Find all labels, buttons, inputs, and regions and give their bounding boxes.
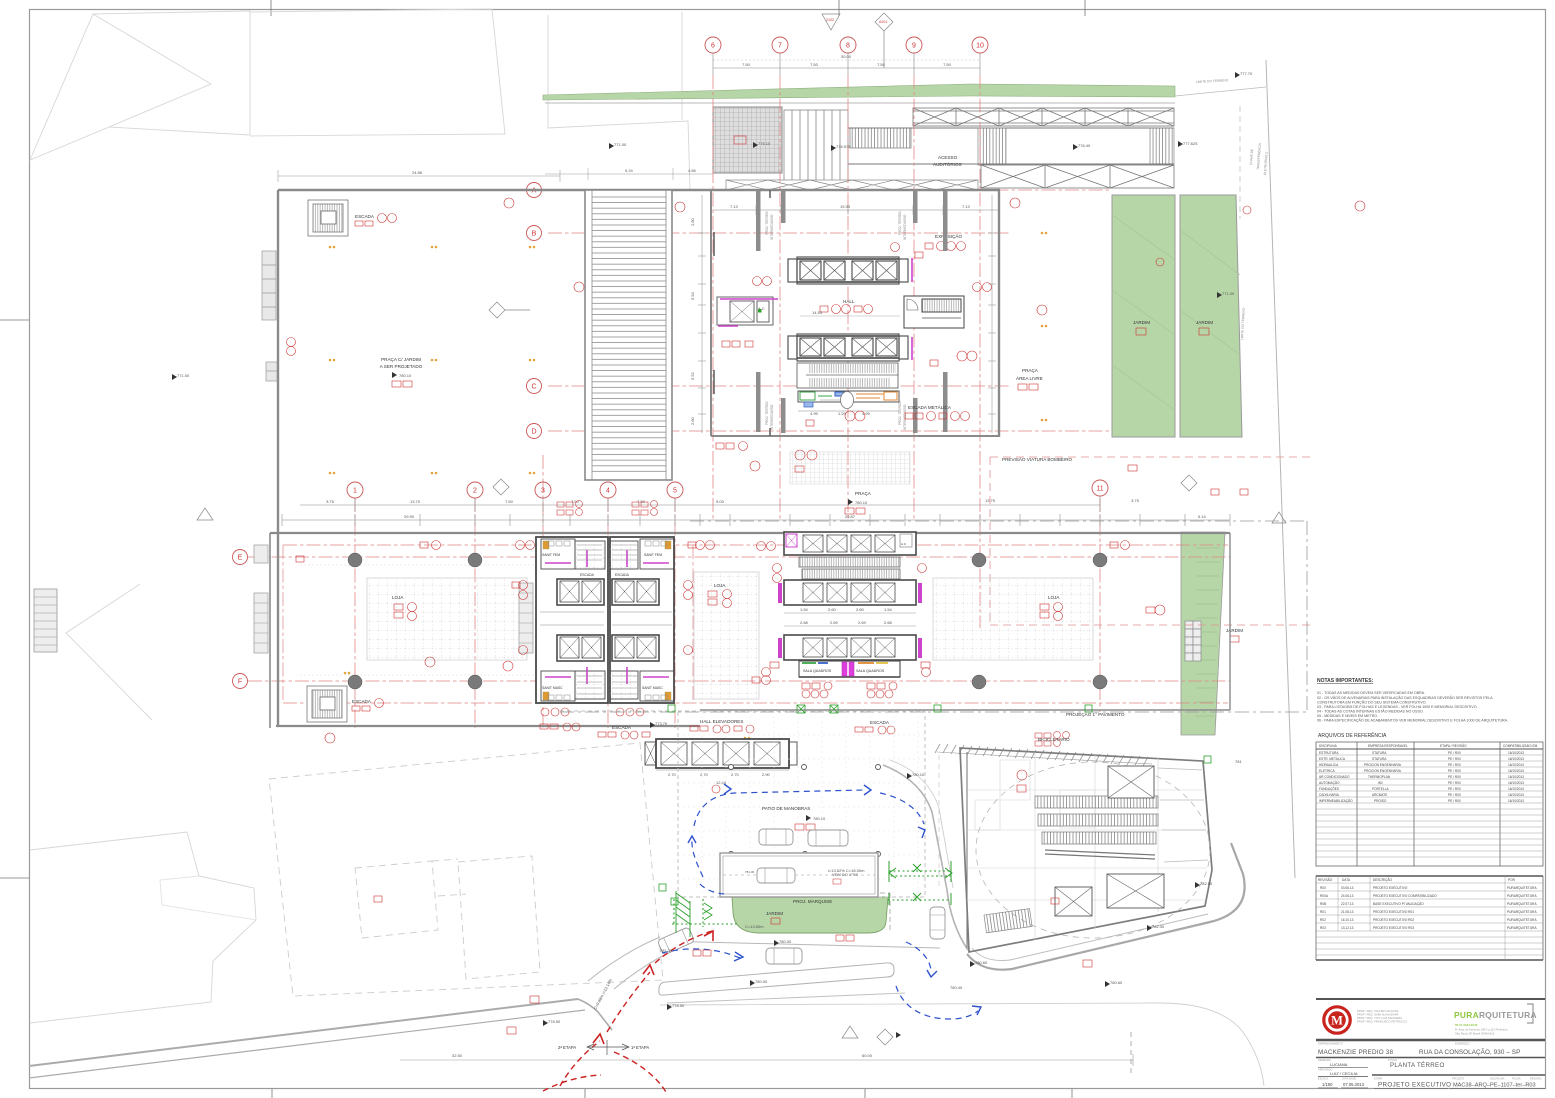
svg-text:DISCIPLINA: DISCIPLINA [1319,744,1338,748]
svg-text:PURARQUITETURA: PURARQUITETURA [1507,886,1537,890]
svg-text:5.14: 5.14 [1198,514,1207,519]
svg-text:16/10/2013: 16/10/2013 [1508,769,1524,773]
svg-text:INTERMEDIARIO: INTERMEDIARIO [770,214,774,240]
svg-text:7.50: 7.50 [877,62,886,67]
svg-text:PLANTA TÉRREO: PLANTA TÉRREO [1390,1062,1445,1069]
svg-text:R01: R01 [1320,910,1326,914]
svg-text:ETAPA / REVISÃO: ETAPA / REVISÃO [1440,743,1467,748]
svg-text:780.00: 780.00 [779,939,792,944]
svg-text:781.30: 781.30 [745,870,755,874]
svg-text:7.13: 7.13 [962,204,971,209]
svg-text:PURARQUITETURA: PURARQUITETURA [1507,894,1537,898]
svg-text:R0B: R0B [1320,902,1326,906]
svg-text:PE / R00: PE / R00 [1448,769,1461,773]
svg-text:7.50: 7.50 [810,62,819,67]
svg-text:JARDIM: JARDIM [1226,628,1243,633]
svg-text:PE / R00: PE / R00 [1448,757,1461,761]
svg-text:ARQUIVOS DE REFERÊNCIA: ARQUIVOS DE REFERÊNCIA [1318,731,1387,739]
svg-text:HIDRAULICA: HIDRAULICA [1319,763,1339,767]
svg-text:CAIXILHARIA: CAIXILHARIA [1319,793,1340,797]
svg-text:SALA QUADROS: SALA QUADROS [803,669,832,673]
svg-text:JARDIM: JARDIM [1196,320,1213,325]
svg-text:06 - PARA ESPECIFICAÇÃO DE: 06 - PARA ESPECIFICAÇÃO DE ACABAMENTOS V… [1317,718,1508,723]
svg-text:PURARQUITETURA: PURARQUITETURA [1507,926,1537,930]
svg-text:771.00: 771.00 [614,142,627,147]
svg-text:2.69: 2.69 [858,620,867,625]
svg-text:PE / R00: PE / R00 [1448,775,1461,779]
svg-text:4.56: 4.56 [688,168,697,173]
svg-text:4: 4 [606,488,610,495]
svg-text:9: 9 [912,43,916,50]
svg-text:2.68: 2.68 [884,620,893,625]
svg-text:CONSTRUTORA EM FUNÇÃO DO S: CONSTRUTORA EM FUNÇÃO DO SEU SISTEMA CON… [1317,700,1427,705]
svg-text:REVISÃO: REVISÃO [1318,877,1333,882]
svg-text:PROJETO EXECUTIVO COMPATIBIL: PROJETO EXECUTIVO COMPATIBILIZADO [1373,894,1437,898]
svg-text:780.00: 780.00 [755,979,768,984]
svg-text:D: D [531,429,536,436]
svg-text:STATURA: STATURA [1372,751,1387,755]
svg-text:05 - MEDIDAS E NIVEIS EM: 05 - MEDIDAS E NIVEIS EM METRO. [1317,714,1378,718]
svg-text:10: 10 [976,43,984,50]
svg-text:60.00: 60.00 [862,1053,873,1058]
svg-text:16/10/2013: 16/10/2013 [1508,775,1524,779]
svg-text:16.10.13: 16.10.13 [1341,918,1354,922]
svg-text:7.13: 7.13 [730,204,739,209]
svg-text:INTERMEDIARIO: INTERMEDIARIO [770,404,774,430]
svg-text:PROJETO EXECUTIVO R02: PROJETO EXECUTIVO R02 [1373,918,1414,922]
svg-text:ENDEREÇO: ENDEREÇO [1455,1042,1470,1046]
svg-text:5.54: 5.54 [690,291,695,300]
svg-text:A SER PROJETADO: A SER PROJETADO [380,364,423,369]
svg-text:PROJ. MARQUISE: PROJ. MARQUISE [793,899,832,904]
svg-text:PROISO: PROISO [1374,799,1387,803]
svg-text:1.54: 1.54 [800,607,809,612]
svg-text:16/10/2013: 16/10/2013 [1508,757,1524,761]
svg-text:INTERMEDIARIO: INTERMEDIARIO [903,214,907,240]
svg-text:AR CONDICIONADO: AR CONDICIONADO [1319,775,1350,779]
svg-text:32.50: 32.50 [452,1053,463,1058]
svg-text:5.52: 5.52 [690,371,695,380]
svg-text:ELETRICA: ELETRICA [1319,769,1335,773]
svg-text:BICICLETARIO: BICICLETARIO [1038,737,1070,742]
svg-text:21.08.13: 21.08.13 [1341,910,1354,914]
svg-text:16/10/2013: 16/10/2013 [1508,751,1524,755]
svg-text:AUTOMAÇÃO: AUTOMAÇÃO [1319,780,1340,785]
svg-text:LOJA: LOJA [714,583,726,588]
svg-text:SANIT MASC: SANIT MASC [642,686,663,690]
svg-text:COMPATIBILIZADO EM: COMPATIBILIZADO EM [1503,744,1538,748]
svg-text:8: 8 [846,43,850,50]
svg-text:1/150: 1/150 [1322,1082,1333,1087]
svg-text:MACKENZIE PREDIO 38: MACKENZIE PREDIO 38 [1318,1049,1393,1056]
svg-text:BASE EXECUTIVO P/ VALIDAÇÃO: BASE EXECUTIVO P/ VALIDAÇÃO [1373,901,1424,906]
svg-text:03.06.13: 03.06.13 [1341,886,1354,890]
svg-text:PURARQUITETURA: PURARQUITETURA [1507,902,1537,906]
svg-text:782.30: 782.30 [1152,924,1165,929]
svg-text:DESENHO: DESENHO [1318,1058,1331,1062]
svg-text:PE / R00: PE / R00 [1448,787,1461,791]
svg-text:PROJETO EXECUTIVO R01: PROJETO EXECUTIVO R01 [1373,910,1414,914]
svg-text:780.10: 780.10 [855,500,868,505]
svg-text:2.60: 2.60 [828,607,837,612]
svg-text:30.00: 30.00 [841,54,852,59]
svg-text:775.10: 775.10 [758,141,771,146]
svg-text:ACESSO: ACESSO [938,155,958,160]
svg-text:3.75: 3.75 [1131,498,1140,503]
svg-text:C=13.50m: C=13.50m [745,924,764,929]
svg-text:ESCALA: ESCALA [1318,1077,1329,1081]
svg-text:PRAÇA: PRAÇA [1022,368,1039,373]
svg-text:SANIT FEM: SANIT FEM [542,553,560,557]
svg-text:W2: W2 [1378,781,1383,785]
svg-text:7.50: 7.50 [505,499,514,504]
svg-text:4.99: 4.99 [862,411,871,416]
svg-text:PURARQUITETURA: PURARQUITETURA [1507,910,1537,914]
svg-text:EMPREENDIMENTO: EMPREENDIMENTO [1318,1042,1343,1046]
svg-text:2.70: 2.70 [700,772,709,777]
svg-text:780.40: 780.40 [950,985,963,990]
svg-text:DATA: DATA [1342,878,1351,882]
svg-text:16/10/2013: 16/10/2013 [1508,781,1524,785]
svg-text:55 11 3044.3046: 55 11 3044.3046 [1455,1023,1478,1027]
svg-text:ESCADA: ESCADA [352,699,372,704]
svg-text:777.625: 777.625 [1183,141,1198,146]
svg-text:IMPERMEABILIZAÇÃO: IMPERMEABILIZAÇÃO [1319,798,1353,803]
svg-text:2: 2 [473,488,477,495]
svg-text:7.50: 7.50 [943,62,952,67]
svg-text:PROJ. TERREO: PROJ. TERREO [898,401,902,425]
svg-text:PROJEÇÃO 1° PAVIMENTO: PROJEÇÃO 1° PAVIMENTO [1066,711,1125,717]
svg-text:SANIT MASC: SANIT MASC [542,686,563,690]
svg-text:RUA DA CONSOLAÇÃO, 930 –: RUA DA CONSOLAÇÃO, 930 – SP [1419,1047,1520,1056]
svg-text:São Paulo SP Brasil 05404-: São Paulo SP Brasil 05404-015 [1455,1032,1495,1036]
svg-text:7: 7 [778,43,782,50]
svg-text:VEM DO 1°SS: VEM DO 1°SS [832,872,858,877]
svg-text:FUNDAÇÕES: FUNDAÇÕES [1319,786,1339,791]
svg-text:780.60: 780.60 [1110,980,1123,985]
svg-text:24.86: 24.86 [412,170,423,175]
svg-text:16/10/2013: 16/10/2013 [1508,793,1524,797]
svg-text:POR: POR [1508,878,1516,882]
svg-text:771.00: 771.00 [1222,291,1235,296]
svg-text:SALA QUADROS: SALA QUADROS [856,669,885,673]
svg-text:773.70: 773.70 [655,721,668,726]
svg-text:NOTAS IMPORTANTES:: NOTAS IMPORTANTES: [1317,678,1374,684]
svg-text:01 - TODAS AS MEDIDAS DEV: 01 - TODAS AS MEDIDAS DEVEM SER VERIFICA… [1317,691,1425,695]
svg-text:16/10/2013: 16/10/2013 [1508,799,1524,803]
svg-text:ÁREA LIVRE: ÁREA LIVRE [1016,375,1043,381]
svg-text:2.90: 2.90 [762,772,771,777]
svg-text:6: 6 [711,43,715,50]
svg-text:STATURA: STATURA [1372,757,1387,761]
svg-text:R00A: R00A [1320,894,1329,898]
svg-text:04 - TODAS AS COTAS INTER: 04 - TODAS AS COTAS INTERNAS ESTÃO MEDID… [1317,709,1424,714]
svg-text:2.60: 2.60 [856,607,865,612]
svg-text:PROJETO EXECUTIVO: PROJETO EXECUTIVO [1373,886,1408,890]
svg-text:ESCADA: ESCADA [355,214,375,219]
svg-text:PROF° ARQ. FRANCISCO PETRAC: PROF° ARQ. FRANCISCO PETRACCO [1357,1020,1408,1024]
svg-text:13.70: 13.70 [410,499,421,504]
svg-text:PROJ. TERREO: PROJ. TERREO [898,211,902,235]
svg-text:PROJETO EXECUTIVO: PROJETO EXECUTIVO [1378,1082,1451,1089]
svg-text:782.55: 782.55 [1200,881,1213,886]
svg-text:THERMOPLAN: THERMOPLAN [1368,775,1391,779]
svg-text:DATA BASE: DATA BASE [1342,1077,1356,1081]
svg-text:778.50: 778.50 [548,1019,561,1024]
svg-text:FOLHA: FOLHA [1512,1077,1521,1081]
svg-text:2.69: 2.69 [830,620,839,625]
svg-text:PE / R00: PE / R00 [1448,793,1461,797]
svg-text:ESCADA METÁLICA: ESCADA METÁLICA [908,404,952,410]
svg-text:3.75: 3.75 [326,499,335,504]
svg-text:PORTELLA: PORTELLA [1372,787,1389,791]
svg-text:PREVISÃO VIATURA BOMBEIRO: PREVISÃO VIATURA BOMBEIRO [1002,456,1073,462]
svg-text:16/10/2013: 16/10/2013 [1508,763,1524,767]
svg-text:9.24: 9.24 [625,168,634,173]
svg-text:5.00: 5.00 [716,499,725,504]
svg-text:02 - OS VÃOS DE ALVENARIA: 02 - OS VÃOS DE ALVENARIAS PARA INSTALAÇ… [1317,695,1493,700]
svg-text:780.10: 780.10 [912,772,925,777]
svg-text:B: B [532,231,537,238]
svg-text:HALL: HALL [843,299,855,304]
svg-text:PE / R00: PE / R00 [1448,763,1461,767]
svg-text:PROJETO: PROJETO [1452,1077,1464,1081]
svg-text:PURARQUITETURA: PURARQUITETURA [1454,1010,1537,1020]
svg-text:R00: R00 [1320,886,1326,890]
svg-text:JARDIM: JARDIM [1133,320,1150,325]
svg-text:780.60: 780.60 [975,960,988,965]
svg-text:2.70: 2.70 [668,772,677,777]
svg-text:ETAPA: ETAPA [1374,1077,1382,1081]
svg-text:JARDIM: JARDIM [766,911,783,916]
svg-text:PATIO DE MANOBRAS: PATIO DE MANOBRAS [762,806,810,811]
svg-text:PRAÇA C/ JARDIM: PRAÇA C/ JARDIM [381,357,421,362]
svg-text:777.70: 777.70 [1240,71,1253,76]
svg-text:R02: R02 [1320,918,1326,922]
svg-text:03 - PARA LISTAGEM DE FOL: 03 - PARA LISTAGEM DE FOLHAS E LEGENDAS … [1317,705,1478,709]
svg-text:LUIZ / CECILIA: LUIZ / CECILIA [1330,1071,1358,1076]
svg-text:14.53: 14.53 [812,310,823,315]
svg-text:5: 5 [673,488,677,495]
svg-text:DISCIPLINA: DISCIPLINA [1490,1077,1505,1081]
svg-text:7.50: 7.50 [742,62,751,67]
svg-text:PE / R00: PE / R00 [1448,781,1461,785]
svg-text:ARCMATE: ARCMATE [1372,793,1387,797]
svg-text:R03: R03 [1320,926,1326,930]
svg-text:4.99: 4.99 [810,411,819,416]
svg-text:HALL ELEVADORES: HALL ELEVADORES [700,719,743,724]
svg-text:19.34: 19.34 [840,204,851,209]
svg-text:778.50: 778.50 [672,1003,685,1008]
svg-text:2.80: 2.80 [690,416,695,425]
svg-text:3: 3 [541,488,545,495]
svg-text:29.90: 29.90 [404,514,415,519]
svg-text:C: C [531,384,536,391]
svg-text:1.54: 1.54 [884,607,893,612]
svg-text:2ª ETAPA: 2ª ETAPA [558,1045,576,1050]
svg-text:ESCADA: ESCADA [612,725,632,730]
svg-text:PROCION ENGENHARIA: PROCION ENGENHARIA [1364,763,1402,767]
svg-text:F: F [238,679,242,686]
svg-text:2.80: 2.80 [690,217,695,226]
svg-text:22.07.13: 22.07.13 [1341,902,1354,906]
svg-text:PROJ. TERREO: PROJ. TERREO [765,401,769,425]
svg-text:2102: 2102 [826,18,834,22]
svg-text:LOJA: LOJA [1048,595,1060,600]
svg-text:7.50: 7.50 [637,499,646,504]
svg-text:776.575: 776.575 [836,144,851,149]
svg-text:PE / R00: PE / R00 [1448,751,1461,755]
svg-text:ESTR. METALICA: ESTR. METALICA [1319,757,1346,761]
svg-text:PROJ. TERREO: PROJ. TERREO [765,211,769,235]
svg-text:PURARQUITETURA: PURARQUITETURA [1507,918,1537,922]
svg-text:PE / R00: PE / R00 [1448,799,1461,803]
svg-text:771.00: 771.00 [177,373,190,378]
svg-text:DESCRIÇÃO: DESCRIÇÃO [1373,877,1392,882]
svg-text:LUCIANA: LUCIANA [1330,1062,1348,1067]
svg-text:1ª ETAPA: 1ª ETAPA [631,1045,649,1050]
svg-text:13.12.13: 13.12.13 [1341,926,1354,930]
svg-text:29.87: 29.87 [845,514,856,519]
svg-text:A.C: A.C [901,542,907,546]
svg-text:781.30: 781.30 [660,948,673,953]
svg-text:2.70: 2.70 [731,772,740,777]
svg-text:AUDITÓRIOS: AUDITÓRIOS [933,161,962,167]
svg-text:2.68: 2.68 [800,620,809,625]
svg-text:16/10/2013: 16/10/2013 [1508,787,1524,791]
svg-text:M: M [1331,1014,1343,1028]
svg-text:07.05.2013: 07.05.2013 [1343,1082,1365,1087]
svg-text:ESCADA: ESCADA [580,573,595,577]
svg-text:PRAÇA: PRAÇA [855,491,872,496]
svg-text:E: E [238,555,243,562]
svg-text:24.06.13: 24.06.13 [1341,894,1354,898]
svg-text:EXPOSIÇÃO: EXPOSIÇÃO [935,233,962,239]
svg-text:SANIT FEM: SANIT FEM [644,553,662,557]
svg-text:MAC38–ARQ–PE–1107–ter–R03: MAC38–ARQ–PE–1107–ter–R03 [1453,1083,1536,1089]
svg-text:LOJA: LOJA [392,595,404,600]
svg-text:ESCADA: ESCADA [615,573,630,577]
svg-text:780.10: 780.10 [813,816,826,821]
svg-text:1: 1 [353,488,357,495]
svg-text:781: 781 [1235,759,1242,764]
svg-text:PROCION ENGENHARIA: PROCION ENGENHARIA [1364,769,1402,773]
svg-text:A201: A201 [879,20,887,24]
svg-text:776.40: 776.40 [1078,143,1091,148]
svg-text:11: 11 [1096,486,1103,493]
svg-text:780.10: 780.10 [399,373,412,378]
svg-text:ESCADA: ESCADA [870,720,890,725]
svg-text:EMPRESA RESPONSAVEL: EMPRESA RESPONSAVEL [1368,744,1408,748]
svg-text:PROJETO EXECUTIVO R03: PROJETO EXECUTIVO R03 [1373,926,1414,930]
svg-text:ESTRUTURA: ESTRUTURA [1319,751,1339,755]
